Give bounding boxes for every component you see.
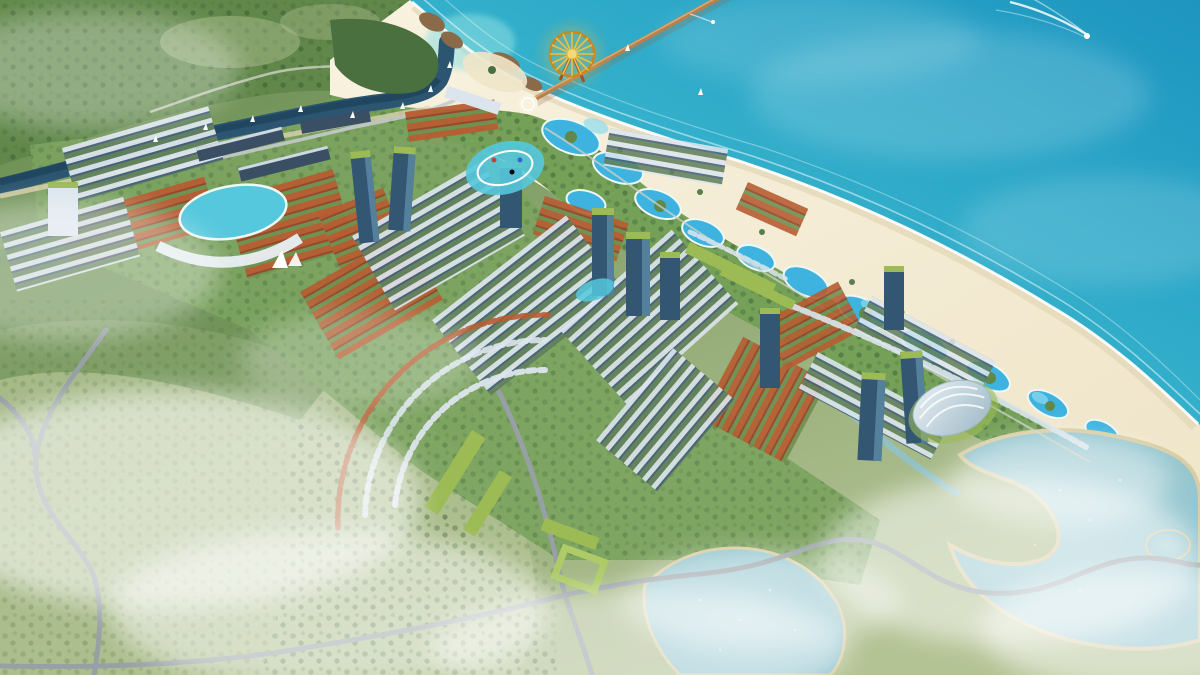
speedboat [1084,33,1090,39]
tower [884,266,904,330]
mist-patch [950,435,1170,525]
water-slide-blue [518,158,523,163]
tower [760,308,780,388]
mist-patch [240,310,480,410]
water-slide-yellow [510,170,515,175]
tower [660,252,680,320]
scene-canvas [0,0,1200,675]
pier-plaza [518,94,538,114]
tower-green-roof [626,232,650,239]
small-boat [711,20,715,24]
tower-green-roof [760,308,780,314]
water-slide-red [492,158,497,163]
ferris-hub [568,50,577,59]
tower-green-roof [592,208,614,215]
tower-green-roof [862,372,886,380]
tower-glass [642,232,650,316]
tower-green-roof [48,182,78,188]
tower-green-roof [660,252,680,258]
mist-patch [620,550,900,650]
tower-green-roof [884,266,904,272]
ferris-wheel [542,24,602,84]
islet-palms [488,66,496,74]
aerial-resort-render [0,0,1200,675]
